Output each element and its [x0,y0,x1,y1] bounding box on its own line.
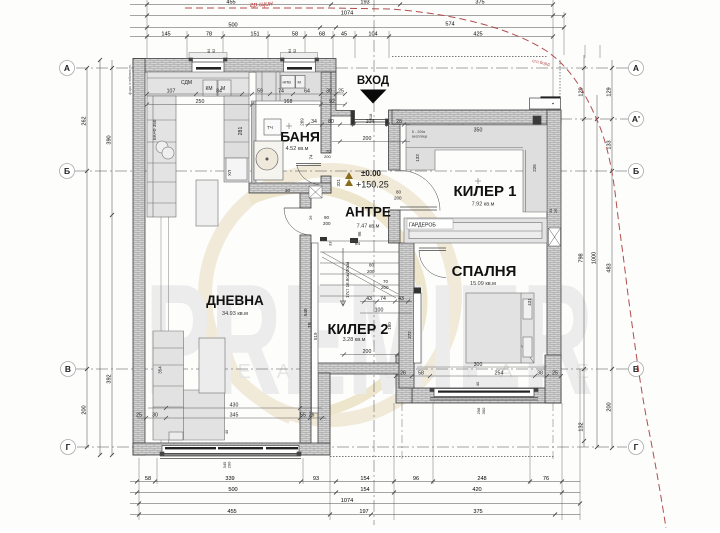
svg-text:226: 226 [532,164,537,172]
svg-text:КИЛЕР 1: КИЛЕР 1 [454,183,517,200]
svg-text:200: 200 [363,349,372,355]
svg-text:КМ: КМ [206,86,213,92]
svg-text:В: В [65,364,71,374]
svg-text:80: 80 [369,263,375,268]
svg-text:76: 76 [543,476,549,482]
svg-text:574: 574 [445,22,454,28]
svg-text:200: 200 [82,405,88,414]
svg-text:М: М [298,80,301,85]
svg-text:БАНЯ: БАНЯ [280,129,320,145]
svg-text:200: 200 [394,196,402,201]
svg-text:500: 500 [228,23,237,29]
svg-text:269: 269 [300,118,305,126]
svg-text:455: 455 [226,0,235,6]
svg-text:68: 68 [319,32,325,38]
svg-text:133: 133 [415,154,420,162]
svg-text:1000: 1000 [592,252,598,264]
svg-text:84: 84 [207,49,211,53]
svg-text:392: 392 [107,374,113,383]
svg-text:7.92 кв.м: 7.92 кв.м [472,202,495,208]
svg-text:133: 133 [607,140,613,149]
svg-text:430: 430 [230,403,239,409]
svg-text:СПАЛНЯ: СПАЛНЯ [452,263,517,280]
svg-text:ТВ: ТВ [307,322,312,328]
svg-text:483: 483 [607,263,613,272]
svg-text:весплвцв: весплвцв [412,135,427,139]
svg-text:197: 197 [359,509,368,515]
svg-text:145: 145 [161,32,170,38]
svg-text:30: 30 [152,413,158,419]
svg-text:281: 281 [238,127,244,136]
svg-text:34: 34 [311,119,317,125]
svg-text:Б - 200в: Б - 200в [412,130,425,134]
svg-text:ТЧ: ТЧ [267,125,273,130]
svg-text:25: 25 [338,89,344,95]
svg-text:200: 200 [227,461,232,468]
svg-text:А: А [633,63,639,73]
svg-text:80: 80 [396,190,402,195]
svg-text:Б: Б [64,166,70,176]
svg-text:70: 70 [383,279,389,284]
svg-text:А': А' [632,114,640,124]
svg-text:254: 254 [495,371,504,377]
svg-text:+150.25: +150.25 [356,180,389,190]
svg-text:180: 180 [387,322,392,330]
svg-text:26: 26 [309,413,315,419]
svg-text:15.09 кв.м: 15.09 кв.м [470,281,496,287]
svg-text:43: 43 [398,296,404,302]
svg-text:ХЛ: ХЛ [227,170,232,176]
svg-text:90: 90 [324,215,330,220]
svg-text:248: 248 [477,476,486,482]
svg-text:45: 45 [341,32,347,38]
svg-text:25: 25 [136,413,142,419]
svg-text:193: 193 [360,0,369,6]
svg-text:78: 78 [206,32,212,38]
svg-text:64: 64 [304,89,310,95]
svg-text:455: 455 [227,509,236,515]
svg-text:500: 500 [228,487,237,493]
svg-text:НПВ: НПВ [283,80,292,85]
svg-text:339: 339 [225,476,234,482]
svg-text:40: 40 [475,381,480,386]
svg-text:СДМ: СДМ [181,80,192,86]
svg-text:58: 58 [145,476,151,482]
svg-text:540: 540 [303,308,308,316]
svg-text:519: 519 [313,332,318,340]
svg-text:96: 96 [413,476,419,482]
svg-text:129: 129 [607,87,613,96]
svg-text:798: 798 [579,253,585,262]
svg-text:ф-ция сглобяеми ел.: ф-ция сглобяеми ел. [128,64,132,95]
svg-text:КИЛЕР 2: КИЛЕР 2 [328,322,389,338]
svg-text:107: 107 [167,89,176,95]
svg-text:200: 200 [381,285,389,290]
svg-text:92: 92 [293,49,297,53]
svg-text:200: 200 [363,136,372,142]
svg-text:74: 74 [309,154,314,160]
svg-text:ДНЕВНА: ДНЕВНА [206,293,264,308]
svg-text:А: А [64,63,70,73]
svg-text:250: 250 [196,99,205,105]
svg-text:350: 350 [474,128,483,134]
svg-text:84: 84 [355,241,361,246]
svg-text:96: 96 [357,231,362,237]
svg-text:17ст 16.8см/30см: 17ст 16.8см/30см [345,262,350,298]
svg-text:26: 26 [553,208,558,213]
svg-text:168: 168 [284,99,293,105]
svg-text:74: 74 [278,89,284,95]
svg-text:92: 92 [212,49,216,53]
svg-text:30: 30 [285,188,291,193]
svg-text:818: 818 [368,113,373,120]
svg-text:АНТРЕ: АНТРЕ [345,205,391,220]
svg-text:200: 200 [367,269,375,274]
svg-text:132: 132 [579,422,585,431]
svg-text:321: 321 [336,178,341,186]
svg-text:1074: 1074 [341,498,353,504]
svg-text:43: 43 [366,296,372,302]
svg-text:431: 431 [527,298,532,306]
svg-text:55: 55 [300,413,306,419]
svg-text:300: 300 [481,407,486,414]
svg-text:100: 100 [375,308,384,314]
svg-text:7.47 кв.м: 7.47 кв.м [357,224,380,230]
svg-text:Г: Г [66,442,71,452]
svg-text:154: 154 [360,476,369,482]
svg-text:354: 354 [158,366,163,374]
svg-text:Б: Б [633,166,639,176]
svg-text:26: 26 [308,215,313,220]
svg-text:425: 425 [473,32,482,38]
svg-text:200: 200 [324,154,331,159]
svg-text:74: 74 [380,296,386,302]
svg-text:93: 93 [313,476,319,482]
svg-text:84: 84 [216,89,222,95]
svg-text:3.28 кв.м: 3.28 кв.м [343,337,366,343]
svg-text:26: 26 [400,371,406,377]
svg-text:1074: 1074 [341,11,353,17]
svg-text:300: 300 [474,362,483,368]
svg-text:390: 390 [107,135,113,144]
svg-text:262: 262 [82,116,88,125]
svg-text:ЕК+Ф 350: ЕК+Ф 350 [152,119,157,140]
svg-text:58: 58 [418,371,424,377]
svg-text:33: 33 [328,241,333,246]
svg-text:38: 38 [537,371,543,377]
svg-text:420: 420 [472,487,481,493]
svg-text:84: 84 [288,49,292,53]
svg-text:104: 104 [368,32,377,38]
svg-text:200: 200 [323,221,331,226]
svg-text:80: 80 [328,119,334,125]
svg-text:375: 375 [473,509,482,515]
svg-text:±0.00: ±0.00 [361,169,382,178]
svg-text:ВХОД: ВХОД [357,75,389,87]
svg-text:ГАРДЕРОБ: ГАРДЕРОБ [409,223,436,229]
svg-text:154: 154 [360,487,369,493]
svg-text:59: 59 [257,89,263,95]
svg-text:70: 70 [326,149,331,154]
svg-text:200: 200 [607,402,613,411]
svg-text:Г: Г [634,442,639,452]
svg-text:30: 30 [326,89,332,95]
svg-text:40: 40 [224,429,229,434]
svg-text:92: 92 [329,99,335,105]
svg-text:4.52 кв.м: 4.52 кв.м [286,146,309,152]
svg-text:272: 272 [407,331,412,339]
svg-text:151: 151 [250,32,259,38]
svg-text:375: 375 [475,0,484,6]
svg-text:28: 28 [396,119,402,125]
svg-text:34.93 кв.м: 34.93 кв.м [222,311,248,317]
svg-text:25: 25 [552,371,558,377]
svg-text:58: 58 [292,32,298,38]
svg-text:345: 345 [230,413,239,419]
